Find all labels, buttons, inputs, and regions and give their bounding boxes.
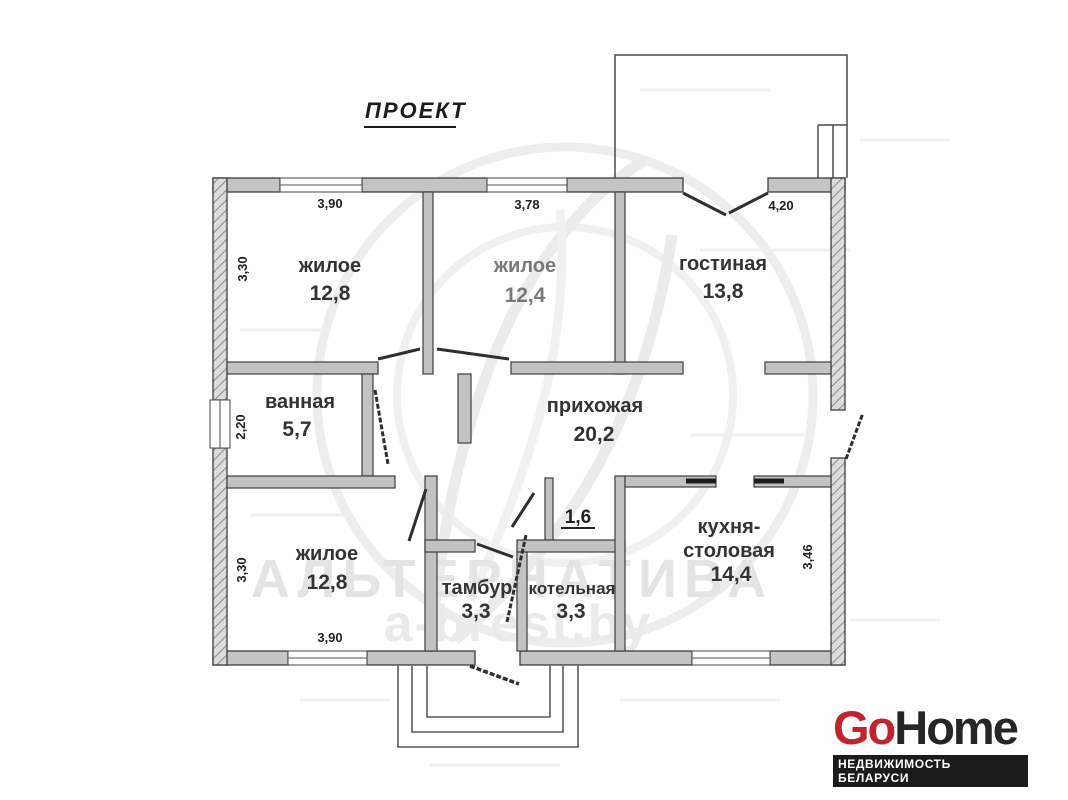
svg-text:12,8: 12,8 xyxy=(310,282,351,305)
dim-top-room2: 3,78 xyxy=(514,197,539,212)
svg-text:5,7: 5,7 xyxy=(282,418,311,441)
logo-tagline: НЕДВИЖИМОСТЬ БЕЛАРУСИ xyxy=(833,755,1028,787)
dim-top-room1: 3,90 xyxy=(317,196,342,211)
dim-side-bathroom: 2,20 xyxy=(233,414,248,439)
logo-home-text: Home xyxy=(894,701,1017,754)
svg-text:тамбур: тамбур xyxy=(442,577,513,599)
svg-text:котельная: котельная xyxy=(529,579,616,598)
svg-text:13,8: 13,8 xyxy=(703,280,744,303)
logo-go-text: Go xyxy=(833,701,894,754)
floorplan-screenshot: АЛЬТЕРНАТИВА a-brest.by xyxy=(0,0,1068,800)
svg-text:20,2: 20,2 xyxy=(574,423,615,446)
dim-side-room5: 3,30 xyxy=(234,557,249,582)
room-label-lounge: гостиная 13,8 xyxy=(679,253,767,303)
svg-text:12,8: 12,8 xyxy=(307,571,348,594)
svg-text:14,4: 14,4 xyxy=(711,563,752,586)
svg-text:жилое: жилое xyxy=(493,255,556,277)
svg-text:12,4: 12,4 xyxy=(505,284,546,307)
svg-text:1,6: 1,6 xyxy=(565,507,591,528)
room-label-living1: жилое 12,8 xyxy=(298,255,361,305)
room-label-hallway: прихожая 20,2 xyxy=(547,395,643,446)
gohome-logo-wordmark: GoHome xyxy=(833,704,1028,752)
svg-text:жилое: жилое xyxy=(298,255,361,277)
dim-side-kitchen: 3,46 xyxy=(800,544,815,569)
dim-top-room3: 4,20 xyxy=(768,198,793,213)
plan-title-text: ПРОЕКТ xyxy=(365,98,467,123)
gohome-logo: GoHome НЕДВИЖИМОСТЬ БЕЛАРУСИ xyxy=(833,704,1028,787)
svg-text:ванная: ванная xyxy=(265,391,335,413)
svg-text:столовая: столовая xyxy=(683,540,775,562)
svg-text:3,3: 3,3 xyxy=(461,600,490,623)
svg-text:жилое: жилое xyxy=(295,543,358,565)
dim-side-room1: 3,30 xyxy=(235,256,250,281)
svg-text:гостиная: гостиная xyxy=(679,253,767,275)
svg-text:прихожая: прихожая xyxy=(547,395,643,417)
dim-bottom-room5: 3,90 xyxy=(317,630,342,645)
floorplan-svg: АЛЬТЕРНАТИВА a-brest.by xyxy=(0,0,1068,800)
plan-title: ПРОЕКТ xyxy=(364,98,467,127)
entrance-steps xyxy=(398,666,578,747)
niche-label: 1,6 xyxy=(561,507,595,528)
svg-text:3,3: 3,3 xyxy=(556,600,585,623)
svg-text:кухня-: кухня- xyxy=(698,516,761,538)
